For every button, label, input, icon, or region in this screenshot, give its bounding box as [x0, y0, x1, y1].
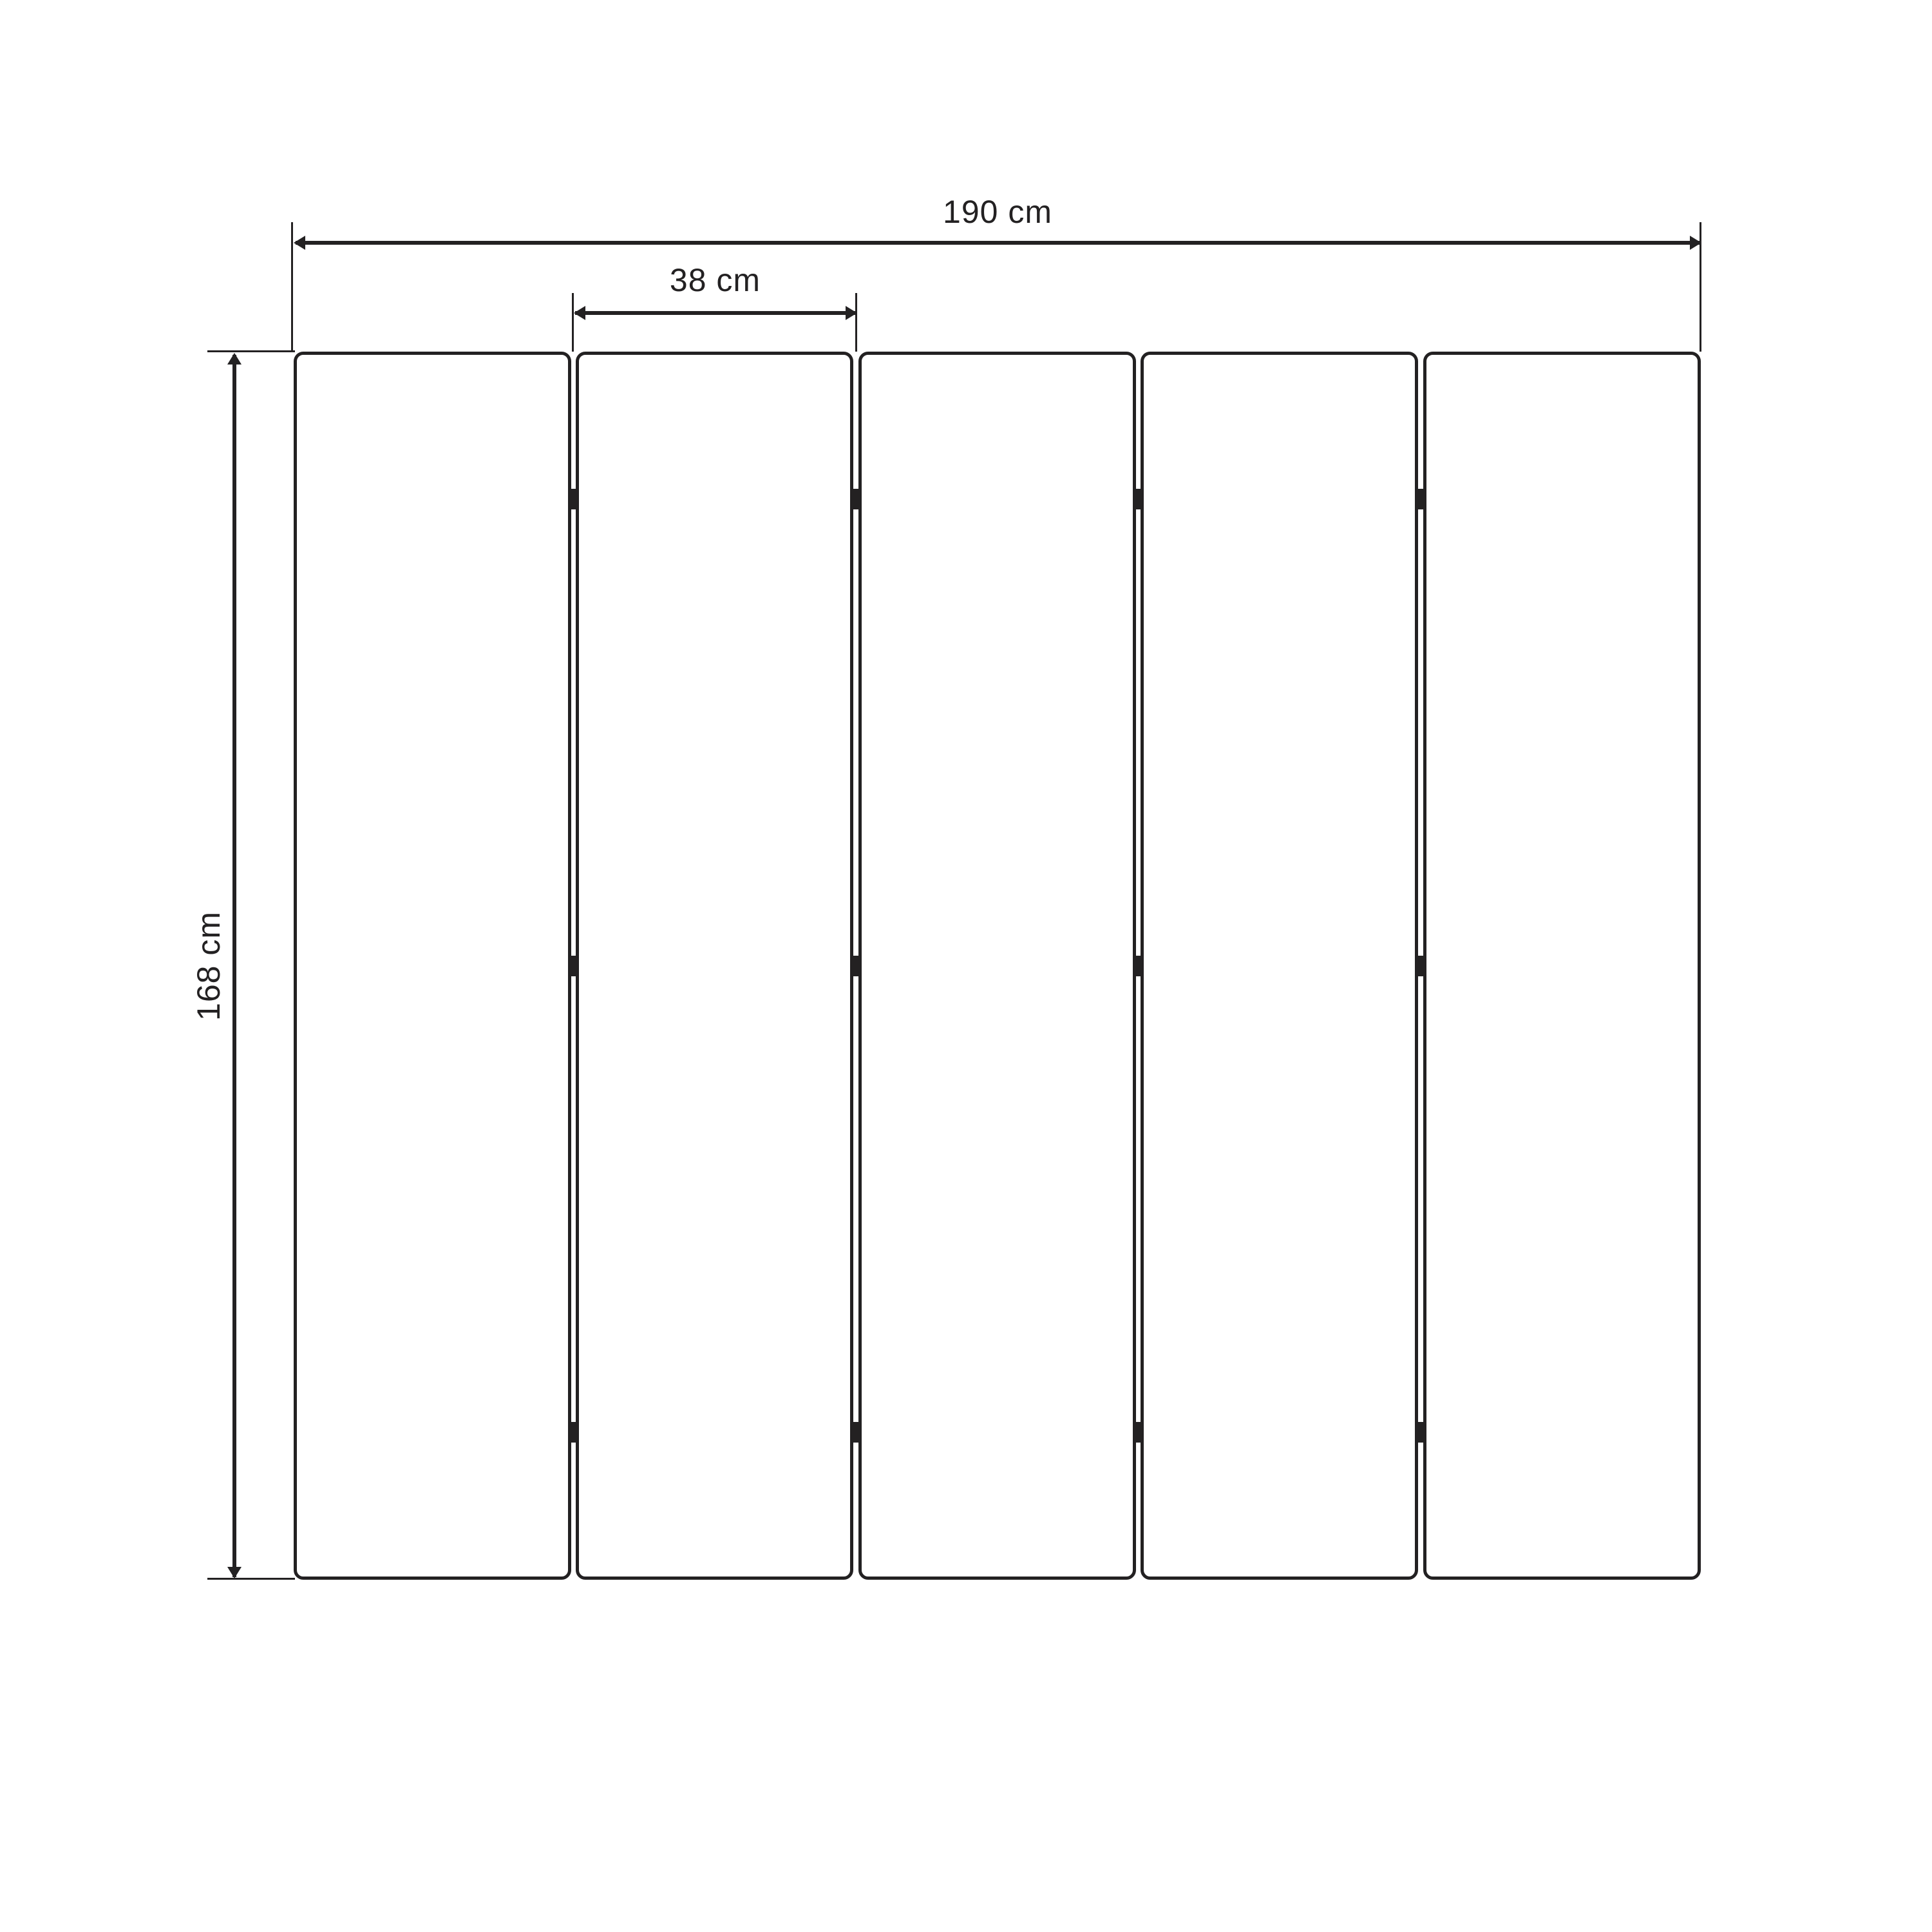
- hinge-icon: [1134, 489, 1143, 509]
- divider-panel-4: [1141, 352, 1418, 1580]
- arrowhead-right-icon: [846, 306, 857, 320]
- panel-width-dimension-line: [575, 311, 855, 315]
- extension-line-height-bottom: [207, 1578, 295, 1580]
- hinge-icon: [1417, 1422, 1426, 1443]
- divider-panel-5: [1423, 352, 1701, 1580]
- height-dimension-line: [232, 355, 236, 1577]
- hinge-icon: [569, 956, 578, 976]
- arrowhead-up-icon: [227, 353, 241, 365]
- divider-panel-1: [294, 352, 571, 1580]
- hinge-icon: [569, 1422, 578, 1443]
- divider-panel-2: [576, 352, 853, 1580]
- arrowhead-down-icon: [227, 1567, 241, 1578]
- extension-line-total-left: [291, 222, 293, 352]
- arrowhead-left-icon: [574, 306, 585, 320]
- hinge-icon: [851, 956, 860, 976]
- total-width-label: 190 cm: [294, 193, 1701, 231]
- hinge-icon: [1417, 489, 1426, 509]
- total-width-dimension-line: [296, 241, 1700, 245]
- hinge-icon: [1134, 1422, 1143, 1443]
- divider-panel-3: [858, 352, 1136, 1580]
- arrowhead-right-icon: [1690, 236, 1701, 250]
- extension-line-panel-right: [855, 293, 857, 352]
- dimension-diagram: 190 cm 38 cm 168 cm: [0, 0, 1932, 1932]
- extension-line-height-top: [207, 350, 295, 352]
- panel-width-label: 38 cm: [574, 261, 857, 299]
- hinge-icon: [1134, 956, 1143, 976]
- hinge-icon: [1417, 956, 1426, 976]
- hinge-icon: [851, 1422, 860, 1443]
- extension-line-panel-left: [572, 293, 574, 352]
- arrowhead-left-icon: [294, 236, 305, 250]
- hinge-icon: [851, 489, 860, 509]
- hinge-icon: [569, 489, 578, 509]
